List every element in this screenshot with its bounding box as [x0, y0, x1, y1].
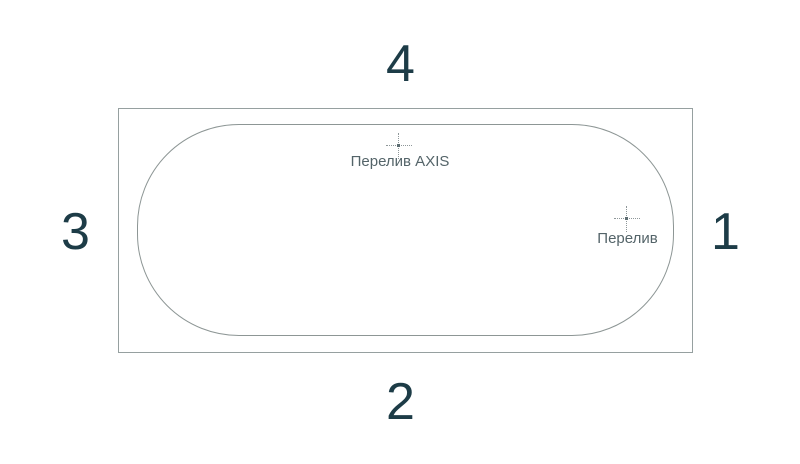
side-number-right: 1: [685, 202, 765, 262]
axis-overflow-label: Перелив AXIS: [320, 153, 480, 171]
crosshair-center-dot: [625, 217, 628, 220]
side-number-left: 3: [35, 202, 115, 262]
center-mark-crosshair-icon: [614, 206, 640, 232]
bathtub-diagram: 4 2 3 1 Перелив AXIS Перелив: [0, 0, 800, 464]
side-number-bottom: 2: [360, 372, 440, 432]
crosshair-center-dot: [397, 144, 400, 147]
overflow-label: Перелив: [567, 230, 688, 248]
side-number-top: 4: [360, 34, 440, 94]
